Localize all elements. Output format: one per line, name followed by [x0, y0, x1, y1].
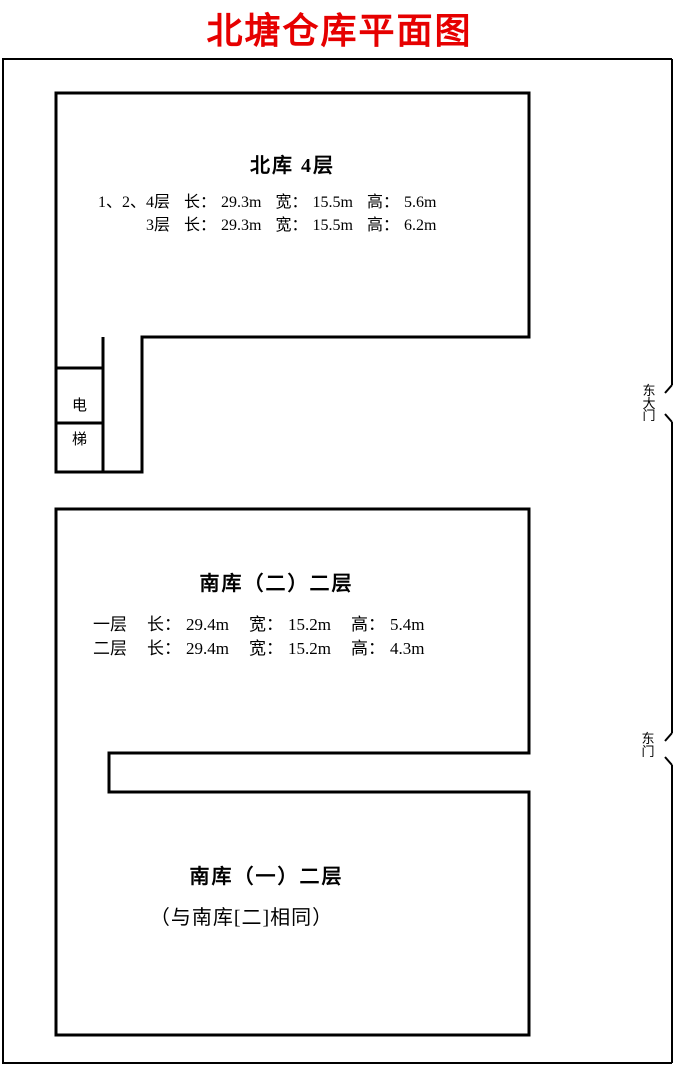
dim-length: 长：29.3m: [184, 214, 261, 237]
south2-building-dimensions: 一层 长：29.4m 宽：15.2m 高：5.4m 二层 长：29.4m 宽：1…: [93, 613, 424, 660]
floor-plan-page: 北塘仓库平面图 北库 4层 1、2、4层 长：29.3m 宽：15.5m 高：5…: [0, 0, 679, 1069]
dim-height: 高：6.2m: [367, 214, 436, 237]
dim-row-label: 3层: [98, 214, 170, 237]
dim-width: 宽：15.2m: [249, 613, 331, 637]
dim-row-label: 二层: [93, 637, 127, 661]
north-building-dimensions: 1、2、4层 长：29.3m 宽：15.5m 高：5.6m 3层 长：29.3m…: [98, 191, 436, 237]
dim-length: 长：29.4m: [147, 637, 229, 661]
east-main-gate-tick-top: [665, 385, 672, 393]
dim-height: 高：5.4m: [351, 613, 424, 637]
east-gate-label: 东门: [640, 733, 656, 758]
east-gate-tick-bottom: [665, 757, 672, 765]
north-building-title: 北库 4层: [56, 149, 529, 178]
south1-building-note: （与南库[二]相同）: [5, 901, 478, 930]
dim-row-label: 一层: [93, 613, 127, 637]
south2-building-title: 南库（二）二层: [40, 567, 513, 596]
east-main-gate-tick-bottom: [665, 414, 672, 422]
dim-width: 宽：15.5m: [275, 191, 352, 214]
elevator-top-label: 电: [56, 398, 103, 414]
dim-height: 高：4.3m: [351, 637, 424, 661]
east-main-gate-label: 东大门: [641, 385, 657, 423]
dim-length: 长：29.3m: [184, 191, 261, 214]
dim-width: 宽：15.5m: [275, 214, 352, 237]
page-title: 北塘仓库平面图: [0, 2, 679, 54]
south1-building-title: 南库（一）二层: [30, 860, 503, 889]
dim-row-label: 1、2、4层: [98, 191, 170, 214]
elevator-bottom-label: 梯: [56, 432, 103, 448]
dim-height: 高：5.6m: [367, 191, 436, 214]
east-gate-tick-top: [665, 733, 672, 741]
dim-length: 长：29.4m: [147, 613, 229, 637]
dim-width: 宽：15.2m: [249, 637, 331, 661]
